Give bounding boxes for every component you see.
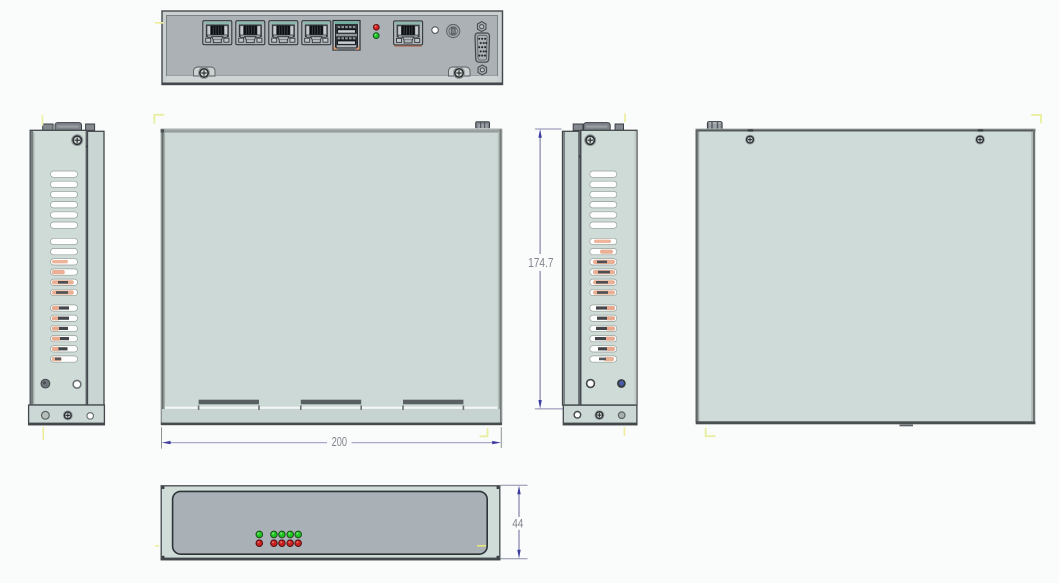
svg-text:200: 200 xyxy=(332,434,347,449)
svg-text:44: 44 xyxy=(512,519,524,531)
svg-text:174.7: 174.7 xyxy=(528,256,553,270)
